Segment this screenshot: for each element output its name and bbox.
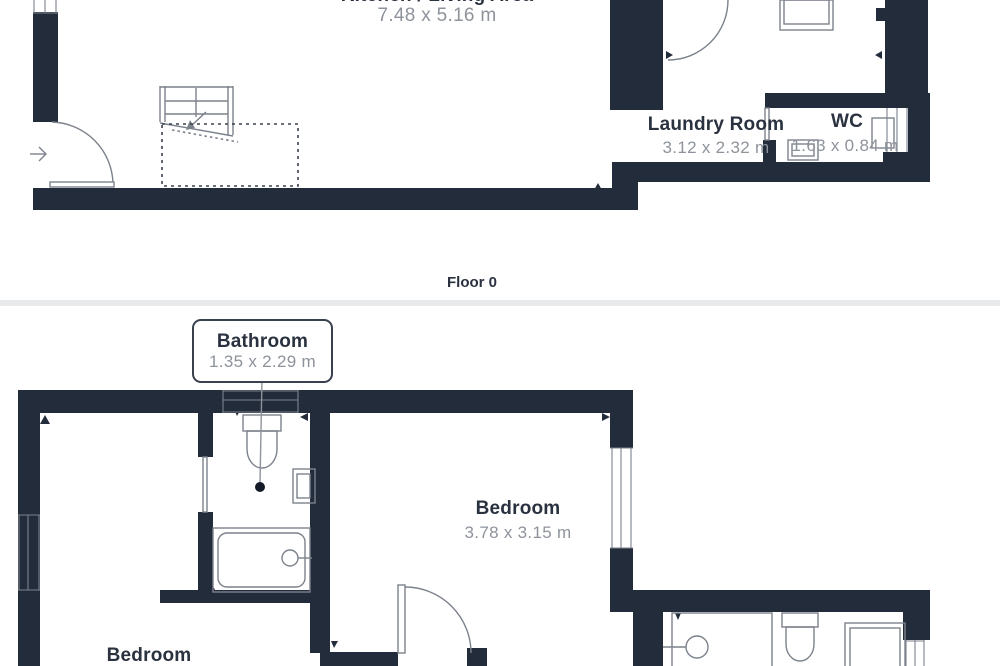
door-marker bbox=[876, 8, 888, 21]
kitchen-living-dims: 7.48 x 5.16 m bbox=[377, 6, 496, 26]
laundry-room-label: Laundry Room bbox=[648, 114, 784, 135]
door-leaf bbox=[398, 585, 405, 653]
wall-segment bbox=[612, 162, 930, 182]
floor0-plan bbox=[30, 0, 930, 210]
door-leaf bbox=[50, 182, 114, 187]
leader-dot bbox=[255, 482, 265, 492]
shower-fixture bbox=[663, 613, 772, 666]
wall-segment bbox=[467, 648, 487, 666]
wall-segment bbox=[610, 590, 930, 612]
wall-segment bbox=[885, 0, 928, 95]
headroom-dashed-outline bbox=[162, 124, 298, 186]
floor1-plan bbox=[18, 378, 930, 666]
wall-segment bbox=[765, 93, 930, 108]
bathtub-fixture bbox=[213, 528, 312, 592]
door-arc bbox=[668, 0, 728, 60]
wall-segment bbox=[320, 652, 398, 666]
bedroom-second-label: Bedroom bbox=[107, 645, 192, 666]
wall-segment bbox=[610, 0, 663, 110]
wc-label: WC bbox=[831, 111, 863, 132]
floorplan-drawing bbox=[0, 0, 1000, 666]
bathroom-label: Bathroom bbox=[217, 331, 308, 352]
door-marker bbox=[666, 51, 673, 59]
wall-segment bbox=[903, 590, 930, 640]
wall-segment bbox=[198, 512, 213, 592]
bedroom-main-label: Bedroom bbox=[476, 498, 561, 519]
wall-segment bbox=[198, 413, 213, 457]
bathroom-callout: Bathroom 1.35 x 2.29 m bbox=[192, 319, 333, 383]
door-marker bbox=[300, 413, 308, 421]
window bbox=[906, 640, 924, 666]
door-arc bbox=[405, 587, 471, 653]
door-arc bbox=[52, 122, 113, 184]
entrance-door bbox=[30, 122, 114, 187]
bathroom-dims: 1.35 x 2.29 m bbox=[209, 352, 316, 372]
stairs bbox=[160, 86, 238, 142]
floor0-walls bbox=[33, 0, 930, 210]
entrance-arrow-icon bbox=[30, 147, 46, 161]
wc-dims: 1.63 x 0.84 m bbox=[792, 136, 899, 156]
laundry-room-dims: 3.12 x 2.32 m bbox=[663, 138, 770, 158]
stair-break-line bbox=[160, 123, 233, 136]
floor0-caption: Floor 0 bbox=[447, 274, 497, 292]
door-marker bbox=[40, 415, 50, 424]
wall-segment bbox=[18, 390, 40, 666]
wall-segment bbox=[633, 612, 663, 666]
floorplan-image: Kitchen / Living Area 7.48 x 5.16 m Laun… bbox=[0, 0, 1000, 666]
toilet-fixture bbox=[243, 415, 281, 468]
wall-segment bbox=[310, 590, 330, 653]
wall-segment bbox=[610, 390, 633, 448]
door-leaf bbox=[203, 457, 207, 512]
door-marker bbox=[594, 183, 602, 190]
wall-segment bbox=[908, 108, 930, 182]
wall-segment bbox=[33, 12, 58, 122]
wall-segment bbox=[33, 188, 637, 210]
bedroom-door bbox=[398, 585, 471, 653]
door-marker bbox=[331, 641, 338, 648]
door-marker bbox=[602, 413, 610, 421]
door-marker bbox=[675, 613, 681, 620]
toilet-fixture bbox=[782, 613, 818, 661]
washing-machine-fixture bbox=[780, 0, 833, 30]
door-marker bbox=[875, 51, 882, 59]
window bbox=[610, 448, 633, 548]
wall-segment bbox=[18, 390, 633, 413]
window bbox=[33, 0, 58, 13]
bedroom-main-dims: 3.78 x 3.15 m bbox=[465, 523, 572, 543]
vanity-fixture bbox=[845, 623, 905, 666]
floor-separator bbox=[0, 300, 1000, 306]
